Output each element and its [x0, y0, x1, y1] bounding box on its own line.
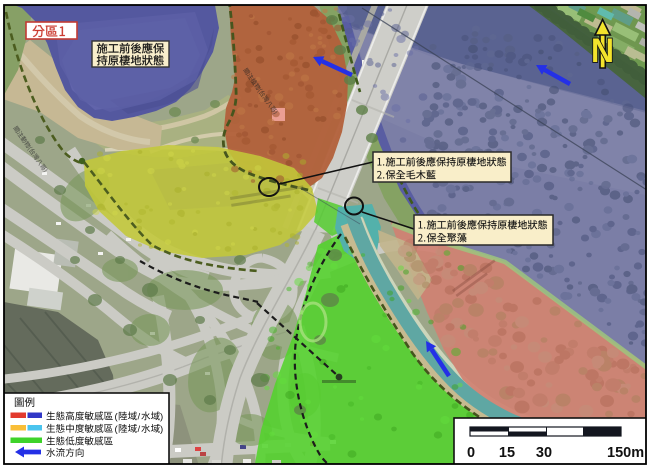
svg-text:/: /	[138, 424, 141, 435]
svg-text:): )	[160, 424, 163, 435]
svg-text:150m: 150m	[607, 445, 644, 461]
svg-text:0: 0	[467, 445, 475, 461]
svg-text:N: N	[591, 32, 614, 70]
svg-text:): )	[160, 412, 163, 423]
svg-text:30: 30	[536, 445, 552, 461]
svg-text:15: 15	[499, 445, 515, 461]
svg-text:/: /	[138, 412, 141, 423]
